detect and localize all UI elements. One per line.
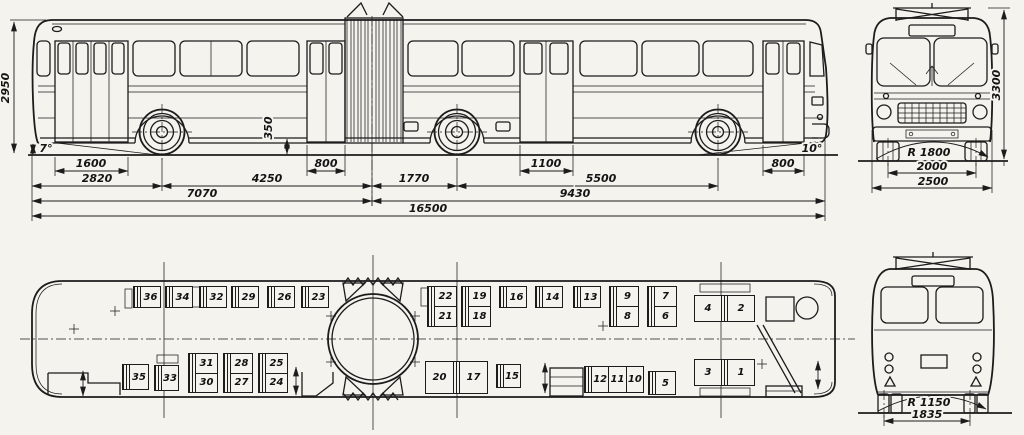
rear-marker-light bbox=[53, 27, 62, 32]
seat-back-hatch bbox=[134, 287, 141, 307]
tail-lights bbox=[885, 353, 981, 373]
seat-pair-9-8: 98 bbox=[609, 286, 639, 327]
skirt-hatch bbox=[404, 122, 418, 131]
dim-overall-height: 2950 bbox=[0, 72, 12, 103]
front-panel-box bbox=[812, 97, 823, 105]
middle-door bbox=[307, 41, 345, 142]
articulation-bellows bbox=[345, 3, 403, 143]
steering-wheel bbox=[796, 297, 818, 319]
dim-middle-door-width: 800 bbox=[315, 157, 338, 170]
dim-overall-length: 16500 bbox=[409, 202, 448, 215]
front-small-light bbox=[884, 94, 889, 99]
wheel-house-shelf bbox=[700, 388, 750, 396]
dim-front-door-width: 800 bbox=[772, 157, 795, 170]
warning-triangles bbox=[885, 377, 981, 386]
rear-window-right bbox=[936, 287, 983, 323]
dim-trailer-door-width: 1100 bbox=[531, 157, 562, 170]
front-small-light bbox=[976, 94, 981, 99]
body-outline bbox=[33, 20, 828, 143]
axle-centerlines bbox=[132, 16, 748, 206]
side-window bbox=[462, 41, 514, 76]
front-view: R 1800 2000 2500 3300 bbox=[858, 3, 1010, 193]
middle-step-well bbox=[302, 372, 333, 396]
trailer-step-well bbox=[550, 368, 583, 396]
dim-rear-track: 1835 bbox=[912, 408, 943, 421]
rear-window-left bbox=[881, 287, 928, 323]
rear-step-well bbox=[48, 373, 120, 395]
skirt-hatch bbox=[496, 122, 510, 131]
roof-rack-rear bbox=[893, 252, 973, 270]
dim-front-section-length: 9430 bbox=[560, 187, 591, 200]
bellows-zigzag-bottom bbox=[343, 393, 398, 400]
grille bbox=[898, 103, 966, 123]
seat-26: 26 bbox=[267, 286, 295, 308]
seat-pair-7-6: 76 bbox=[647, 286, 677, 327]
dim-front-height: 3300 bbox=[990, 69, 1003, 100]
license-plate bbox=[921, 355, 947, 368]
front-door bbox=[763, 41, 804, 142]
departure-angle-line bbox=[697, 142, 816, 155]
driver-compartment bbox=[766, 297, 794, 321]
side-window bbox=[703, 41, 753, 76]
rear-panel bbox=[125, 289, 132, 308]
windshield-left bbox=[877, 38, 930, 86]
dim-overall-width: 2500 bbox=[918, 175, 949, 188]
rear-door bbox=[55, 41, 128, 142]
dim-rear-axle-to-articulation: 4250 bbox=[251, 172, 283, 185]
seat-23: 23 bbox=[301, 286, 329, 308]
dim-approach-angle: 7° bbox=[39, 142, 52, 155]
seat-15: 15 bbox=[496, 364, 521, 388]
front-belt-lines bbox=[874, 93, 990, 99]
wipers bbox=[890, 63, 974, 86]
front-bumper bbox=[873, 127, 991, 141]
front-marker-light bbox=[818, 115, 823, 120]
dim-articulation-to-middle-axle: 1770 bbox=[399, 172, 430, 185]
trailer-door bbox=[520, 41, 573, 142]
mirror-right bbox=[992, 44, 998, 54]
seat-pair-22-21: 2221 bbox=[427, 286, 457, 327]
seat-34: 34 bbox=[165, 286, 193, 308]
bellows-roof-flags bbox=[347, 3, 403, 17]
destination-box bbox=[909, 25, 955, 36]
seat-bench-3-1: 31 bbox=[694, 359, 755, 386]
wheel-house-shelf bbox=[700, 284, 750, 292]
side-window bbox=[408, 41, 458, 76]
mirror-left bbox=[866, 44, 872, 54]
dim-middle-to-front-axle: 5500 bbox=[586, 172, 617, 185]
seat-bench-4-2: 42 bbox=[694, 295, 755, 322]
seat-14: 14 bbox=[535, 286, 563, 308]
side-window bbox=[580, 41, 637, 76]
headlight-right bbox=[973, 105, 987, 119]
seat-16: 16 bbox=[499, 286, 527, 308]
front-step-well bbox=[757, 325, 802, 397]
seat-35: 35 bbox=[122, 364, 149, 390]
side-window bbox=[133, 41, 175, 76]
seat-33: 33 bbox=[154, 365, 179, 391]
dim-front-track: 2000 bbox=[917, 160, 948, 173]
rear-body-outline bbox=[872, 269, 994, 395]
dim-rear-overhang: 2820 bbox=[82, 172, 113, 185]
seat-32: 32 bbox=[199, 286, 227, 308]
seat-pair-19-18: 1918 bbox=[461, 286, 491, 327]
heater-box bbox=[157, 355, 178, 363]
bus-blueprint: 1600 800 1100 800 2820 4250 1770 5500 70… bbox=[0, 0, 1024, 435]
rear-destination-box bbox=[912, 276, 954, 286]
dim-departure-angle: 10° bbox=[802, 142, 823, 155]
side-window bbox=[642, 41, 699, 76]
seat-pair-28-27: 2827 bbox=[223, 353, 253, 393]
side-window bbox=[247, 41, 299, 76]
dim-rear-door-width: 1600 bbox=[76, 157, 107, 170]
side-view bbox=[28, 3, 838, 206]
rear-quarter-window bbox=[37, 41, 50, 76]
windshield-right bbox=[934, 38, 987, 86]
seat-13: 13 bbox=[573, 286, 601, 308]
seat-29: 29 bbox=[231, 286, 259, 308]
seat-pair-25-24: 2524 bbox=[258, 353, 288, 393]
dim-step-height: 350 bbox=[262, 116, 275, 139]
dim-turning-radius-front: R 1800 bbox=[908, 146, 951, 159]
dim-rear-section-length: 7070 bbox=[187, 187, 218, 200]
seat-bench-12-11-10: 121110 bbox=[584, 366, 644, 393]
seat-bench-20-17: 2017 bbox=[425, 361, 488, 394]
seat-pair-31-30: 3130 bbox=[188, 353, 218, 393]
plan-view bbox=[20, 255, 855, 430]
windshield-side bbox=[810, 42, 824, 76]
headlight-left bbox=[877, 105, 891, 119]
seat-5: 5 bbox=[648, 371, 676, 395]
rear-view: R 1150 1835 bbox=[858, 252, 1012, 426]
seat-36: 36 bbox=[133, 286, 161, 308]
